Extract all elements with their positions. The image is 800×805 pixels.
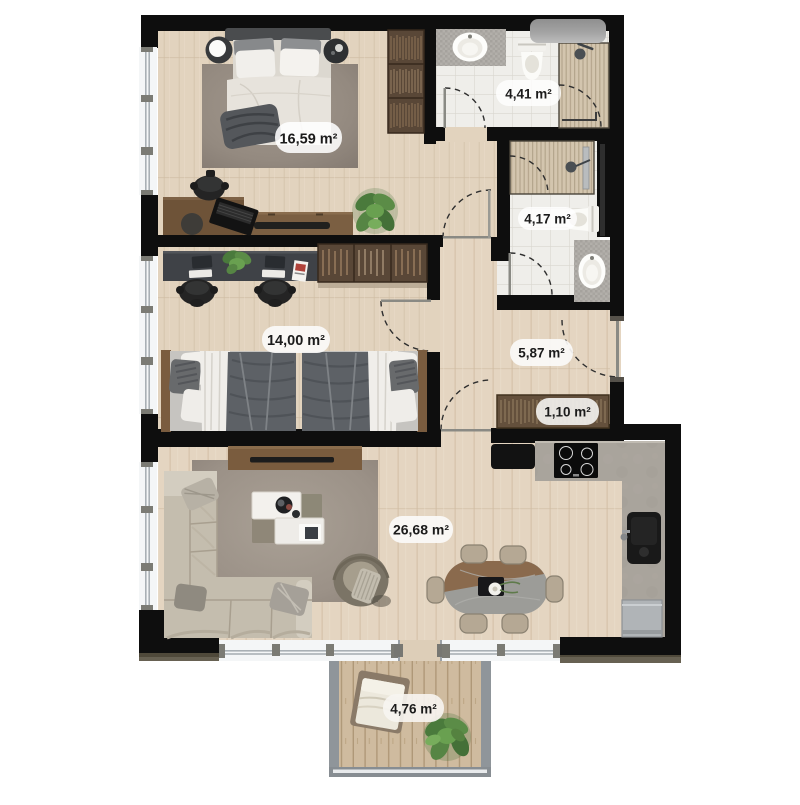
svg-text:14,00 m²: 14,00 m²	[267, 333, 325, 349]
svg-text:5,87 m²: 5,87 m²	[518, 346, 565, 361]
svg-text:4,17 m²: 4,17 m²	[524, 212, 571, 227]
svg-text:4,76 m²: 4,76 m²	[390, 702, 437, 717]
svg-text:16,59 m²: 16,59 m²	[279, 132, 337, 148]
svg-text:1,10 m²: 1,10 m²	[544, 405, 591, 420]
svg-text:26,68 m²: 26,68 m²	[393, 522, 449, 538]
svg-text:4,41 m²: 4,41 m²	[505, 87, 552, 102]
